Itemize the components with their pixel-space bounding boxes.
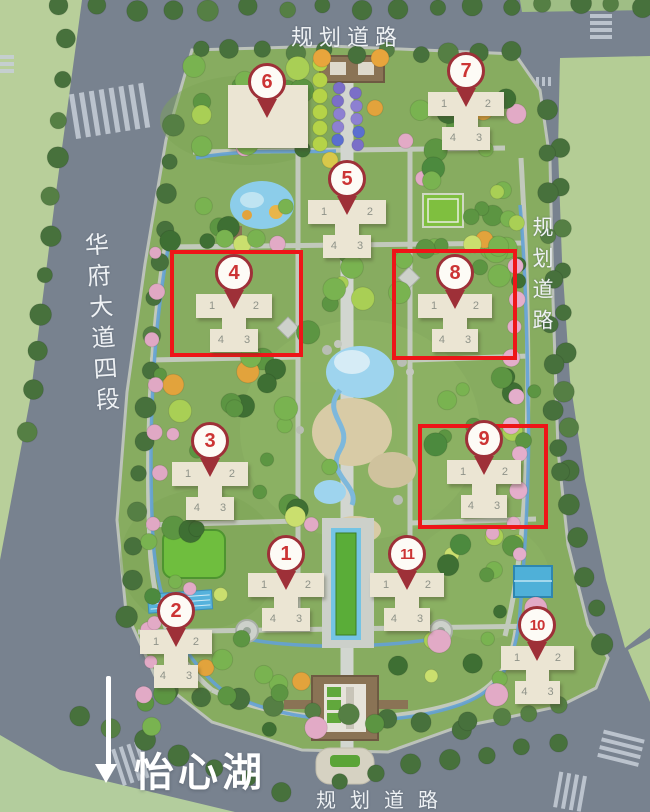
pin-building-10: 10: [518, 606, 556, 663]
pin-tail-icon: [397, 571, 417, 590]
unit-label: 2: [229, 469, 235, 480]
building-9-core: [472, 484, 496, 495]
unit-label: 3: [465, 335, 471, 346]
unit-label: 4: [160, 671, 166, 682]
pin-number: 2: [157, 592, 195, 630]
building-10-lower-wing: 43: [515, 681, 560, 704]
pin-tail-icon: [224, 290, 244, 309]
pin-building-9: 9: [465, 420, 503, 477]
pin-building-8: 8: [436, 254, 474, 311]
lake-arrow-line: [106, 676, 111, 768]
pin-building-7: 7: [447, 52, 485, 109]
unit-label: 2: [305, 580, 311, 591]
pin-building-6: 6: [248, 63, 286, 120]
unit-label: 4: [270, 614, 276, 625]
unit-label: 2: [253, 301, 259, 312]
building-11-lower-wing: 43: [384, 608, 430, 631]
pin-building-3: 3: [191, 422, 229, 479]
unit-label: 2: [367, 207, 373, 218]
green-court: [423, 194, 463, 227]
lake-label: 怡心湖: [134, 740, 266, 798]
building-3-core: [198, 486, 222, 497]
pin-tail-icon: [527, 642, 547, 661]
central-lawn-strip: [322, 518, 374, 648]
pin-tail-icon: [200, 458, 220, 477]
unit-label: 3: [186, 671, 192, 682]
building-5-core: [335, 224, 360, 235]
pin-number: 11: [388, 535, 426, 573]
pin-building-11: 11: [388, 535, 426, 592]
road-label-top: 规划道路: [291, 20, 403, 52]
pin-building-2: 2: [157, 592, 195, 649]
building-2-core: [164, 654, 187, 665]
unit-label: 4: [439, 335, 445, 346]
building-5-lower-wing: 43: [323, 235, 371, 258]
unit-label: 4: [194, 503, 200, 514]
pin-tail-icon: [276, 571, 296, 590]
pin-number: 3: [191, 422, 229, 460]
unit-label: 4: [391, 614, 397, 625]
building-4-lower-wing: 43: [210, 329, 257, 352]
unit-label: 3: [417, 614, 423, 625]
unit-label: 4: [450, 133, 456, 144]
unit-label: 3: [548, 687, 554, 698]
unit-label: 3: [220, 503, 226, 514]
unit-label: 3: [244, 335, 250, 346]
pin-number: 7: [447, 52, 485, 90]
building-9-lower-wing: 43: [461, 495, 507, 518]
pin-number: 6: [248, 63, 286, 101]
unit-label: 1: [321, 207, 327, 218]
unit-label: 4: [468, 501, 474, 512]
unit-label: 4: [521, 687, 527, 698]
lake-arrow-icon: [95, 764, 117, 783]
pin-number: 10: [518, 606, 556, 644]
unit-label: 3: [357, 241, 363, 252]
unit-label: 3: [494, 501, 500, 512]
blue-court: [514, 566, 552, 597]
pin-number: 5: [328, 160, 366, 198]
building-1-lower-wing: 43: [262, 608, 309, 631]
unit-label: 2: [485, 99, 491, 110]
unit-label: 4: [331, 241, 337, 252]
building-10-core: [526, 670, 549, 681]
pin-building-4: 4: [215, 254, 253, 311]
master-plan-map: 规划道路 规划道路 规划道路 华府大道四段 怡心湖 12431124321243…: [0, 0, 650, 812]
pin-tail-icon: [337, 196, 357, 215]
unit-label: 4: [218, 335, 224, 346]
building-7-lower-wing: 43: [442, 127, 489, 150]
road-label-bottom: 规划道路: [316, 784, 452, 812]
building-1-core: [274, 597, 298, 608]
unit-label: 3: [476, 133, 482, 144]
pin-building-1: 1: [267, 535, 305, 592]
building-2-lower-wing: 43: [154, 665, 199, 688]
building-11-core: [395, 597, 419, 608]
pin-number: 8: [436, 254, 474, 292]
unit-label: 3: [296, 614, 302, 625]
building-3-lower-wing: 43: [186, 497, 233, 520]
building-7-core: [454, 116, 478, 127]
building-8-lower-wing: 43: [432, 329, 478, 352]
road-label-right: 规划道路: [526, 216, 556, 340]
pin-tail-icon: [456, 88, 476, 107]
building-8-core: [443, 318, 467, 329]
pin-tail-icon: [445, 290, 465, 309]
pin-number: 9: [465, 420, 503, 458]
building-4-core: [222, 318, 246, 329]
pin-number: 4: [215, 254, 253, 292]
pin-tail-icon: [257, 99, 277, 118]
pin-tail-icon: [474, 456, 494, 475]
pin-tail-icon: [166, 628, 186, 647]
pin-number: 1: [267, 535, 305, 573]
pin-building-5: 5: [328, 160, 366, 217]
